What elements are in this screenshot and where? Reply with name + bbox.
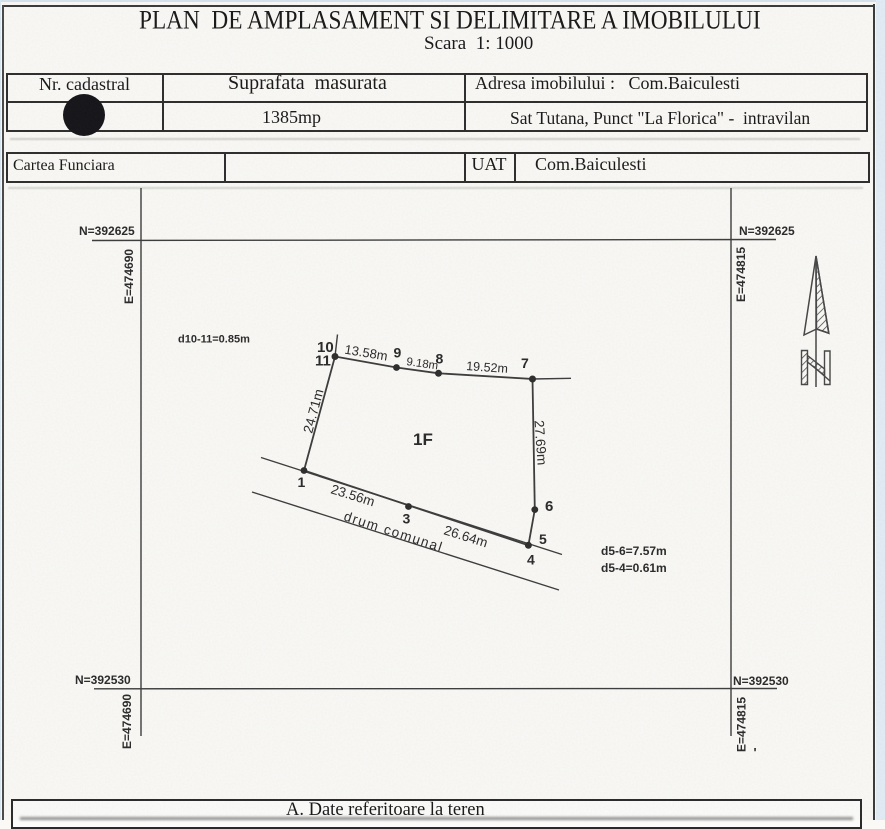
svg-text:E=474815: E=474815 xyxy=(734,247,748,302)
svg-text:19.52m: 19.52m xyxy=(466,359,509,376)
svg-text:E=474690: E=474690 xyxy=(122,249,136,304)
svg-text:26.64m: 26.64m xyxy=(442,523,489,551)
svg-text:d5-6=7.57m: d5-6=7.57m xyxy=(601,544,667,558)
svg-text:11: 11 xyxy=(315,353,331,370)
svg-text:drum comunal: drum comunal xyxy=(342,509,445,555)
svg-text:1: 1 xyxy=(298,474,306,490)
svg-text:5: 5 xyxy=(539,531,547,547)
svg-text:E=474815: E=474815 xyxy=(735,697,749,752)
svg-text:E=474690: E=474690 xyxy=(120,694,134,749)
svg-text:N=392530: N=392530 xyxy=(733,674,789,688)
svg-text:d10-11=0.85m: d10-11=0.85m xyxy=(178,334,250,346)
svg-text:23.56m: 23.56m xyxy=(329,482,376,510)
svg-text:': ' xyxy=(754,745,757,760)
svg-text:7: 7 xyxy=(521,355,529,371)
svg-text:3: 3 xyxy=(403,511,411,527)
svg-text:9: 9 xyxy=(394,345,402,361)
svg-text:N=392625: N=392625 xyxy=(79,224,135,238)
svg-text:N=392530: N=392530 xyxy=(75,673,131,687)
svg-text:27.69m: 27.69m xyxy=(532,420,550,466)
svg-text:N=392625: N=392625 xyxy=(739,224,795,238)
svg-text:24.71m: 24.71m xyxy=(300,387,326,434)
svg-text:1F: 1F xyxy=(413,430,433,449)
svg-text:13.58m: 13.58m xyxy=(344,342,389,364)
svg-text:4: 4 xyxy=(527,552,535,568)
svg-text:6: 6 xyxy=(545,498,553,515)
svg-text:d5-4=0.61m: d5-4=0.61m xyxy=(601,561,667,575)
